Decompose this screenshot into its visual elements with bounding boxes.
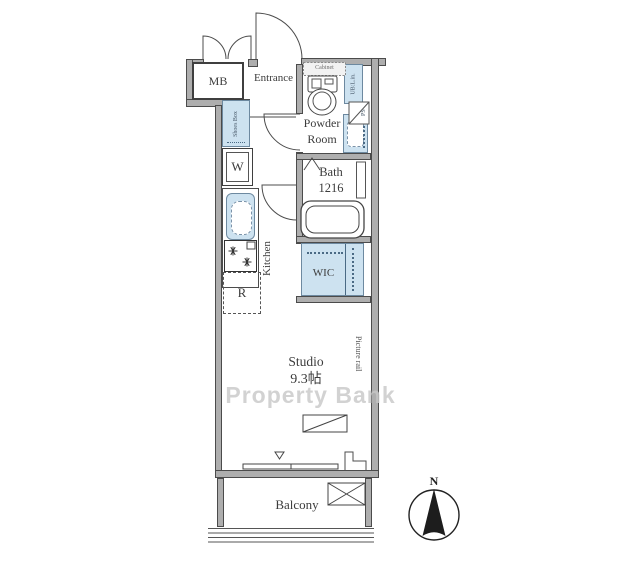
toilet-bowl-icon: [308, 89, 336, 115]
wall-segment: [248, 59, 258, 67]
meter-box: MB: [192, 62, 244, 100]
wic-hanger-rail: [307, 252, 343, 254]
entrance-door-swing-icon: [256, 13, 302, 59]
balcony-wall-left: [217, 478, 224, 527]
shoes-box-label: Shoes Box: [233, 111, 239, 137]
washer-label: W: [231, 159, 243, 175]
kitchen-sink: [226, 193, 255, 240]
wall-segment: [296, 296, 371, 303]
vanity-dots: [363, 119, 365, 148]
walk-in-closet: WIC: [301, 243, 364, 296]
kitchen-label: Kitchen: [261, 196, 274, 276]
opening-marker-icon: [275, 452, 284, 459]
watermark: Property Bank: [198, 382, 423, 409]
compass-circle: [409, 490, 459, 540]
washing-machine: W: [222, 148, 253, 186]
railing-lines: [208, 529, 374, 543]
powder-room-label: Powder Room: [294, 116, 350, 147]
mb-door-swing-icon: [203, 36, 226, 59]
stove: [224, 240, 257, 272]
balcony-label: Balcony: [248, 497, 346, 513]
shoes-box: Shoes Box: [222, 100, 250, 147]
ub-linen-label: UB:L.in.: [351, 73, 357, 94]
mb-door-swing-icon: [228, 36, 251, 59]
bathtub-icon: [301, 201, 364, 238]
shoes-box-dots: [227, 142, 245, 143]
counter-table: [303, 415, 347, 432]
north-arrow-icon: [423, 489, 446, 536]
sliding-window-icon: [243, 464, 338, 469]
balcony-wall-right: [365, 478, 372, 527]
north-label: N: [426, 474, 442, 488]
linen-above-bath: UB:L.in.: [344, 64, 363, 104]
wic-label: WIC: [313, 267, 334, 279]
floorplan-canvas: MB Shoes Box UB:L.in. W R WIC: [0, 0, 640, 569]
toilet-tank-icon: [308, 76, 337, 92]
wall-segment: [296, 153, 371, 160]
refrigerator-space: R: [223, 272, 261, 314]
entrance-label: Entrance: [250, 72, 297, 85]
cabinet-label: Cabinet: [303, 65, 346, 72]
refrigerator-label: R: [238, 285, 247, 301]
wic-shelf-dots: [352, 248, 354, 291]
sink-basin: [231, 201, 252, 235]
wall-segment: [215, 105, 222, 478]
mb-label: MB: [209, 74, 228, 89]
wall-segment: [215, 470, 379, 478]
ac-pipe-step: [345, 452, 366, 470]
wall-segment: [296, 64, 303, 114]
wic-divider: [345, 244, 346, 295]
wall-segment: [371, 58, 379, 478]
ps-label: PS: [358, 103, 370, 123]
wall-segment: [296, 236, 371, 243]
bath-label: Bath 1216: [302, 165, 360, 196]
